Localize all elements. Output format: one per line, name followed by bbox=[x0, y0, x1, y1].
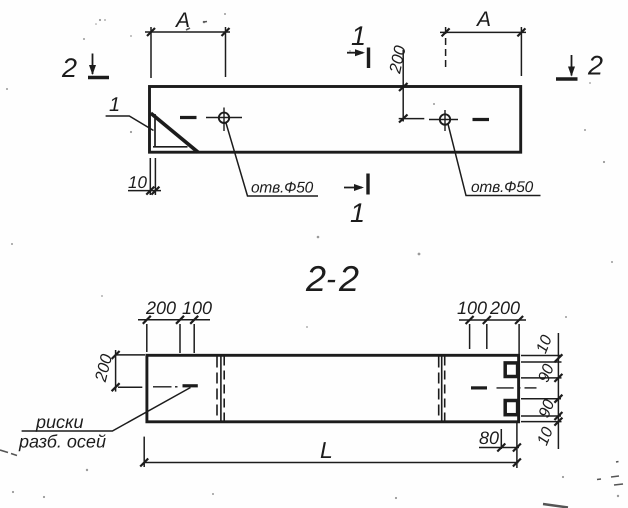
svg-text:10: 10 bbox=[534, 425, 556, 448]
svg-text:10: 10 bbox=[128, 173, 147, 192]
svg-text:10: 10 bbox=[533, 333, 555, 356]
svg-text:80: 80 bbox=[479, 428, 499, 448]
svg-text:2: 2 bbox=[61, 53, 77, 83]
svg-text:A: A bbox=[475, 8, 491, 31]
svg-text:200: 200 bbox=[386, 43, 410, 75]
svg-text:2-2: 2-2 bbox=[305, 258, 359, 299]
svg-text:разб. осей: разб. осей bbox=[18, 432, 106, 452]
svg-text:риски: риски bbox=[35, 412, 84, 432]
svg-text:200: 200 bbox=[145, 298, 176, 318]
svg-text:отв.Ф50: отв.Ф50 bbox=[471, 179, 534, 196]
svg-text:отв.Ф50: отв.Ф50 bbox=[251, 180, 314, 197]
svg-text:200: 200 bbox=[489, 298, 520, 318]
svg-text:1: 1 bbox=[351, 21, 366, 51]
svg-text:100: 100 bbox=[182, 298, 212, 318]
svg-text:2: 2 bbox=[587, 51, 603, 81]
svg-text:100: 100 bbox=[457, 298, 487, 318]
svg-text:L: L bbox=[320, 437, 333, 463]
svg-text:200: 200 bbox=[92, 352, 117, 385]
svg-text:1: 1 bbox=[109, 94, 120, 116]
svg-text:1: 1 bbox=[350, 198, 365, 228]
